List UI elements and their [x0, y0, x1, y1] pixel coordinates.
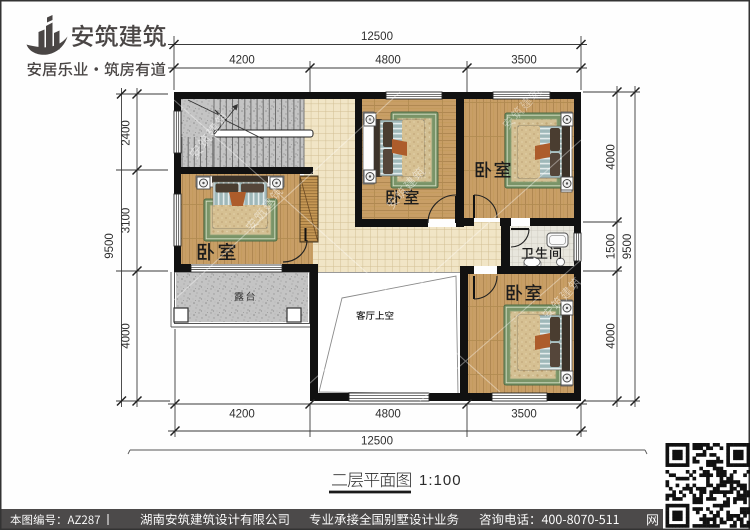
svg-text:4800: 4800	[375, 55, 401, 67]
svg-text:3500: 3500	[511, 55, 537, 67]
svg-text:9500: 9500	[104, 233, 116, 259]
svg-text:4200: 4200	[229, 55, 255, 67]
svg-text:9500: 9500	[622, 234, 634, 260]
svg-text:3500: 3500	[511, 409, 537, 421]
svg-text:4000: 4000	[121, 323, 133, 349]
svg-text:12500: 12500	[361, 31, 393, 43]
svg-text:12500: 12500	[361, 436, 393, 448]
svg-text:4000: 4000	[606, 323, 618, 349]
svg-text:4000: 4000	[606, 144, 618, 170]
svg-text:2400: 2400	[121, 120, 133, 146]
svg-text:3100: 3100	[121, 208, 133, 234]
svg-text:1500: 1500	[606, 234, 618, 260]
svg-text:4800: 4800	[375, 409, 401, 421]
svg-text:4200: 4200	[229, 409, 255, 421]
svg-text:1:100: 1:100	[419, 472, 462, 489]
